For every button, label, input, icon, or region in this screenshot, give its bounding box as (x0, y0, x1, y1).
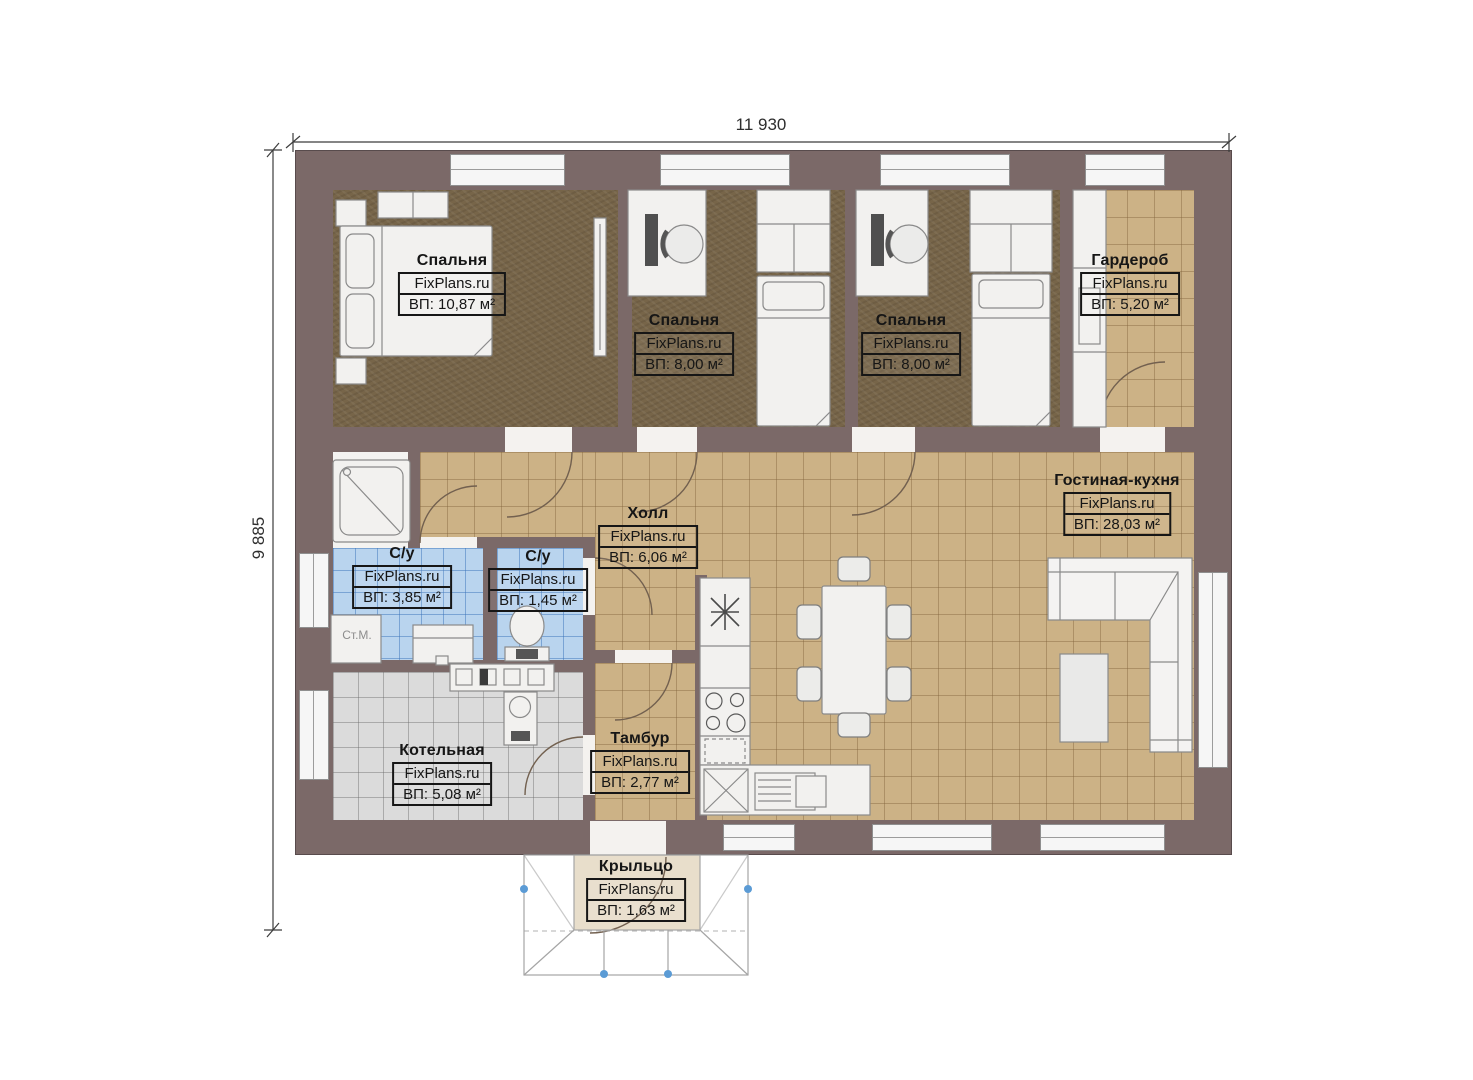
label-box: FixPlans.ru ВП: 28,03 м² (1063, 492, 1171, 536)
room-label-bathroom-2: С/у FixPlans.ru ВП: 1,45 м² (488, 548, 588, 612)
room-label-living-kitchen: Гостиная-кухня FixPlans.ru ВП: 28,03 м² (1054, 472, 1179, 536)
label-box: FixPlans.ru ВП: 8,00 м² (861, 332, 961, 376)
single-bed (972, 274, 1050, 426)
room-area: ВП: 1,63 м² (588, 901, 684, 920)
room-area: ВП: 3,85 м² (354, 588, 450, 607)
room-area: ВП: 28,03 м² (1065, 515, 1169, 534)
nightstand (336, 200, 366, 226)
room-name: Котельная (392, 742, 492, 760)
room-area: ВП: 5,08 м² (394, 785, 490, 804)
label-box: FixPlans.ru ВП: 3,85 м² (352, 565, 452, 609)
boiler-counter (450, 664, 554, 691)
watermark-text: FixPlans.ru (600, 527, 696, 548)
room-label-bathroom-1: С/у FixPlans.ru ВП: 3,85 м² (352, 545, 452, 609)
label-box: FixPlans.ru ВП: 10,87 м² (398, 272, 506, 316)
nightstand (336, 358, 366, 384)
room-name: Спальня (634, 312, 734, 330)
room-label-bedroom-3: Спальня FixPlans.ru ВП: 8,00 м² (861, 312, 961, 376)
door-arc-vestibule (615, 663, 672, 720)
label-box: FixPlans.ru ВП: 1,45 м² (488, 568, 588, 612)
room-area: ВП: 10,87 м² (400, 295, 504, 314)
room-label-wardrobe: Гардероб FixPlans.ru ВП: 5,20 м² (1080, 252, 1180, 316)
room-area: ВП: 6,06 м² (600, 548, 696, 567)
room-area: ВП: 1,45 м² (490, 591, 586, 610)
watermark-text: FixPlans.ru (863, 334, 959, 355)
room-name: Холл (598, 505, 698, 523)
watermark-text: FixPlans.ru (354, 567, 450, 588)
room-name: С/у (352, 545, 452, 563)
room-area: ВП: 2,77 м² (592, 773, 688, 792)
watermark-text: FixPlans.ru (1065, 494, 1169, 515)
label-box: FixPlans.ru ВП: 5,20 м² (1080, 272, 1180, 316)
watermark-text: FixPlans.ru (490, 570, 586, 591)
label-box: FixPlans.ru ВП: 6,06 м² (598, 525, 698, 569)
door-arc-bedroom-2 (637, 452, 697, 512)
watermark-text: FixPlans.ru (1082, 274, 1178, 295)
room-name: Гардероб (1080, 252, 1180, 270)
watermark-text: FixPlans.ru (592, 752, 688, 773)
label-box: FixPlans.ru ВП: 2,77 м² (590, 750, 690, 794)
toilet (505, 606, 549, 661)
room-label-bedroom-1: Спальня FixPlans.ru ВП: 10,87 м² (398, 252, 506, 316)
closet (757, 190, 830, 272)
label-box: FixPlans.ru ВП: 1,63 м² (586, 878, 686, 922)
watermark-text: FixPlans.ru (394, 764, 490, 785)
closet (970, 190, 1052, 272)
room-name: Гостиная-кухня (1054, 472, 1179, 490)
room-area: ВП: 8,00 м² (863, 355, 959, 374)
room-label-vestibule: Тамбур FixPlans.ru ВП: 2,77 м² (590, 730, 690, 794)
sink-vanity (413, 625, 473, 665)
door-arc-bathroom-1 (420, 486, 477, 543)
floor-plan-canvas: 11 930 9 885 Спальня FixPlans.ru ВП: 10,… (0, 0, 1473, 1080)
room-label-porch: Крыльцо FixPlans.ru ВП: 1,63 м² (586, 858, 686, 922)
room-name: Спальня (398, 252, 506, 270)
dimension-width-label: 11 930 (736, 115, 787, 135)
door-arc-bedroom-1 (507, 452, 572, 517)
single-bed (757, 276, 830, 426)
dining-table (822, 586, 886, 714)
room-label-boiler-room: Котельная FixPlans.ru ВП: 5,08 м² (392, 742, 492, 806)
dimension-top (286, 133, 1236, 152)
watermark-text: FixPlans.ru (400, 274, 504, 295)
room-area: ВП: 5,20 м² (1082, 295, 1178, 314)
room-name: С/у (488, 548, 588, 566)
bedroom-1-closet (378, 192, 448, 218)
watermark-text: FixPlans.ru (636, 334, 732, 355)
room-area: ВП: 8,00 м² (636, 355, 732, 374)
room-name: Крыльцо (586, 858, 686, 876)
door-arc-boiler (525, 737, 583, 795)
room-name: Тамбур (590, 730, 690, 748)
washing-machine-label: Ст.М. (334, 628, 380, 642)
room-label-hall: Холл FixPlans.ru ВП: 6,06 м² (598, 505, 698, 569)
mirror-board (594, 218, 606, 356)
shower (333, 460, 410, 542)
watermark-text: FixPlans.ru (588, 880, 684, 901)
door-arc-wardrobe (1100, 362, 1165, 427)
boiler (504, 692, 537, 745)
label-box: FixPlans.ru ВП: 5,08 м² (392, 762, 492, 806)
door-arc-bedroom-3 (852, 452, 915, 515)
label-box: FixPlans.ru ВП: 8,00 м² (634, 332, 734, 376)
dimension-height-label: 9 885 (249, 507, 269, 569)
kitchen-counter-bottom (700, 765, 870, 815)
room-label-bedroom-2: Спальня FixPlans.ru ВП: 8,00 м² (634, 312, 734, 376)
coffee-table (1060, 654, 1108, 742)
room-name: Спальня (861, 312, 961, 330)
